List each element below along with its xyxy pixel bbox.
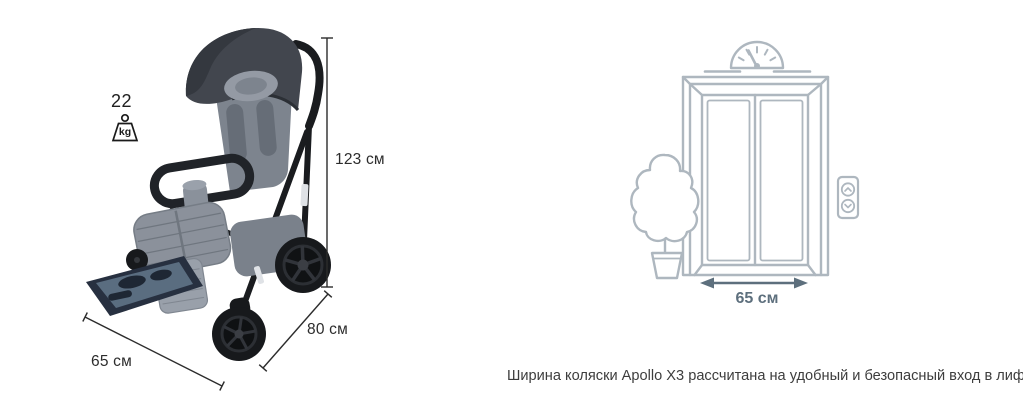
elevator-illustration [618, 26, 868, 316]
width-dimension-line [83, 313, 225, 391]
kg-unit-label: kg [109, 126, 141, 138]
kg-weight-icon: kg [109, 113, 141, 145]
elevator-call-buttons-icon [838, 177, 858, 218]
elevator-width-arrow [700, 278, 808, 289]
width-dimension-label: 65 см [91, 353, 132, 371]
caption-text: Ширина коляски Apollo X3 рассчитана на у… [507, 366, 1023, 386]
elevator-door-width-label: 65 см [712, 290, 802, 308]
potted-plant-icon [631, 155, 698, 278]
height-dimension-label: 123 см [335, 151, 385, 169]
depth-dimension-label: 80 см [307, 321, 348, 339]
product-dimensions-infographic: 22 kg 123 см 80 см 65 см [0, 0, 1023, 402]
elevator-floor-indicator-icon [705, 42, 810, 72]
elevator-doors [708, 95, 803, 265]
rear-wheel [275, 237, 331, 293]
weight-value: 22 [111, 91, 132, 112]
stroller-illustration [60, 20, 420, 395]
front-wheel [212, 296, 266, 361]
